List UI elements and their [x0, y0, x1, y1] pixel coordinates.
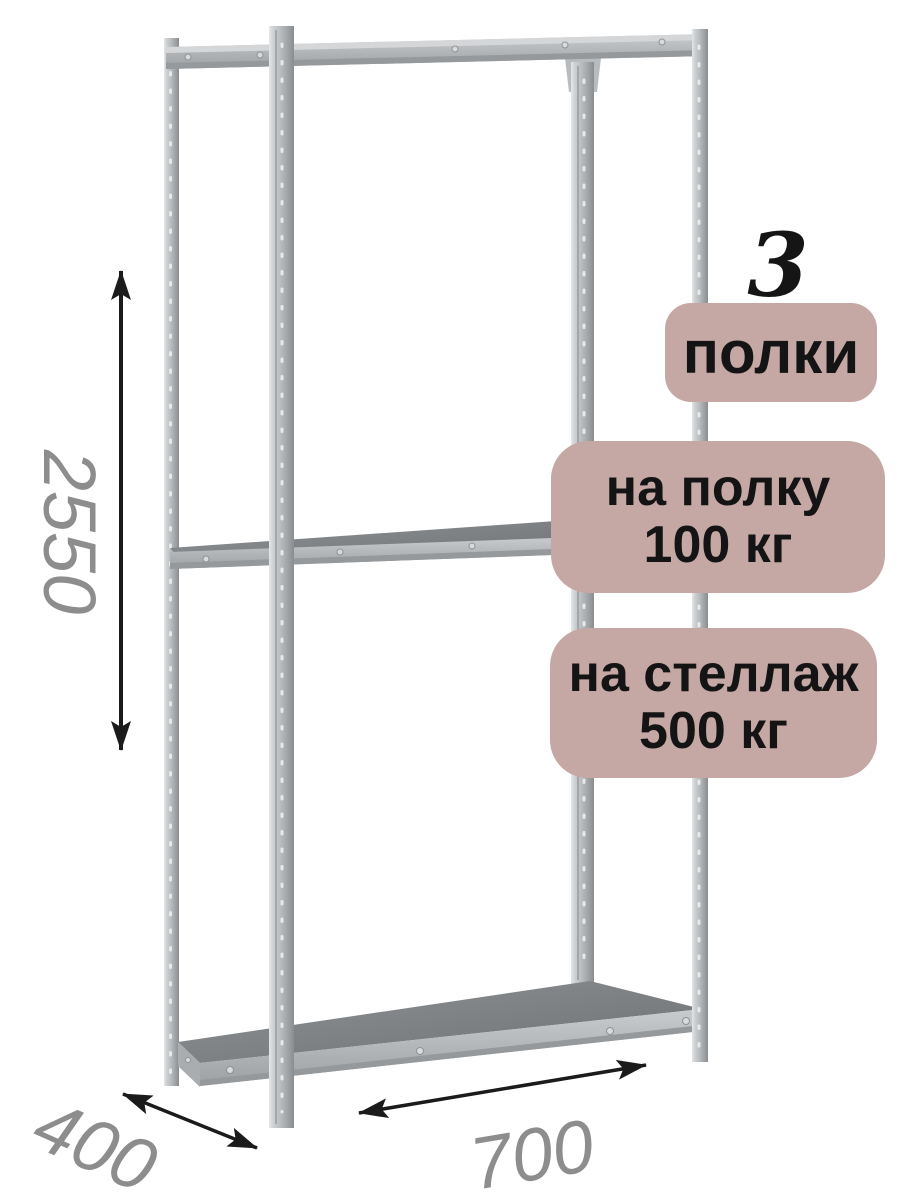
total-load-badge: на стеллаж 500 кг: [550, 628, 877, 778]
shelf-count-number: 3: [747, 221, 808, 309]
per-shelf-load-line1: на полку: [606, 460, 831, 517]
shelf-count-badge: полки: [665, 303, 877, 402]
product-image-canvas: 2550 400 700 3 полки на полку 100 кг на …: [0, 0, 900, 1200]
per-shelf-load-line2: 100 кг: [644, 517, 793, 574]
total-load-line1: на стеллаж: [569, 646, 859, 703]
width-dimension-label: 700: [465, 1108, 599, 1200]
per-shelf-load-badge: на полку 100 кг: [551, 441, 885, 593]
top-shelf: [166, 34, 706, 69]
shelving-rack-illustration: [0, 0, 900, 1200]
middle-shelf: [170, 521, 580, 569]
height-dimension-label: 2550: [32, 450, 106, 615]
bottom-shelf: [178, 981, 702, 1087]
total-load-line2: 500 кг: [639, 703, 788, 760]
rack-post-front-left: [269, 26, 294, 1128]
shelf-count-label: полки: [683, 320, 859, 386]
width-dimension-arrow: [359, 1065, 646, 1113]
